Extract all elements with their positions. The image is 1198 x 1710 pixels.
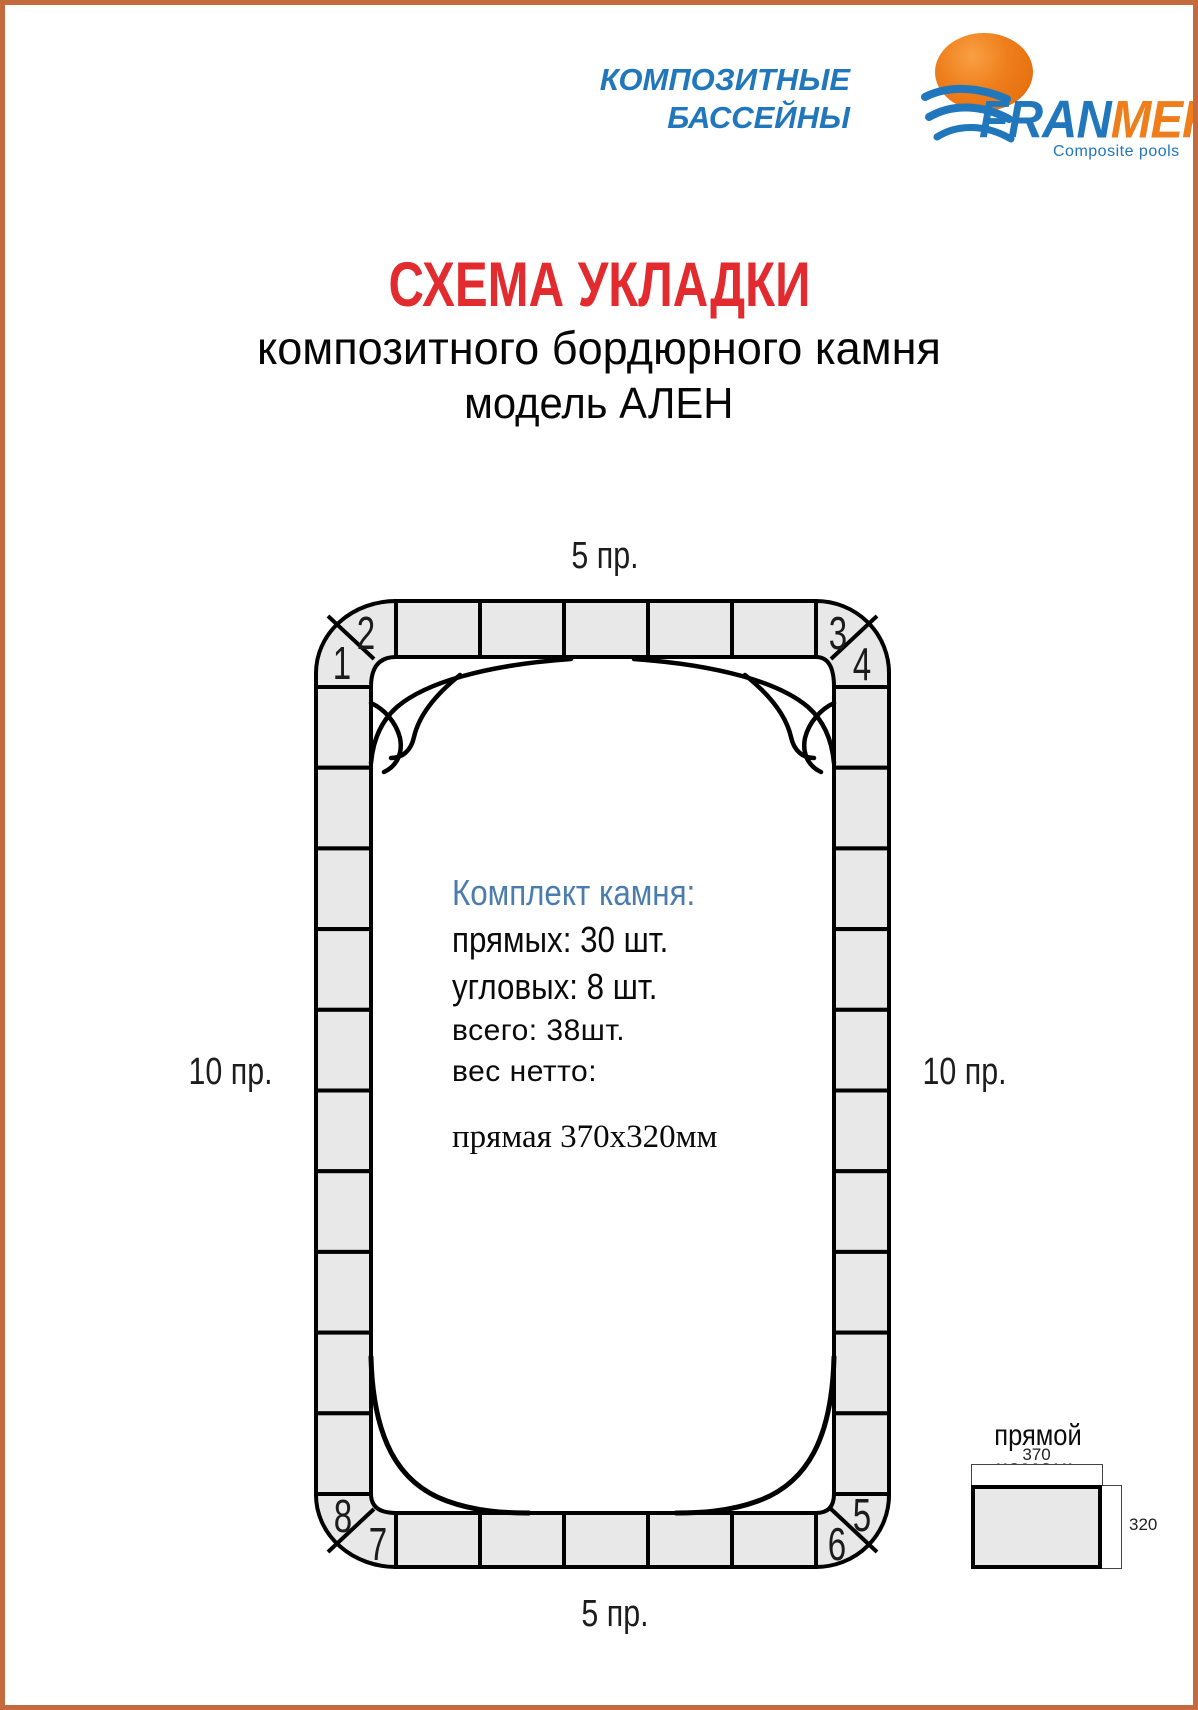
straight-tile [316,687,371,768]
straight-tile [316,929,371,1010]
franmer-logo: FRANMER® Composite pools [905,25,1195,175]
corner-number: 4 [853,640,871,690]
label-bottom-count: 5 пр. [555,1593,675,1636]
bottom-shell-curve [371,1357,529,1513]
straight-tile [564,601,648,657]
legend-width-dimension-box [971,1464,1103,1486]
corner-number: 1 [333,639,351,689]
bottom-shell-curve [676,1357,834,1513]
corner-number: 6 [828,1520,846,1570]
brand-name-fran: FRAN [979,91,1111,150]
straight-tile [648,1513,732,1567]
company-tagline: КОМПОЗИТНЫЕ БАССЕЙНЫ [560,61,850,137]
corner-number: 8 [334,1492,352,1542]
straight-tile [834,1252,889,1333]
straight-tile [834,1010,889,1091]
page-subtitle: композитного бордюрного камня [5,321,1193,375]
straight-tile [648,601,732,657]
corner-number: 5 [853,1491,871,1541]
kit-straight-count: прямых: 30 шт. [452,916,792,963]
straight-tile [564,1513,648,1567]
straight-tile [316,1171,371,1252]
tagline-line1: КОМПОЗИТНЫЕ [560,61,850,99]
corner-number: 2 [357,609,375,659]
straight-tile [834,929,889,1010]
legend-width-label: 370 [971,1445,1102,1465]
legend-height-label: 320 [1129,1515,1157,1535]
page-title: СХЕМА УКЛАДКИ [5,249,1193,321]
straight-tile [834,687,889,768]
straight-tile [732,601,816,657]
page: 12345678 КОМПОЗИТНЫЕ БАССЕЙНЫ FRANMER® C… [0,0,1198,1710]
straight-tile [396,601,480,657]
brand-name: FRANMER® [979,87,1198,147]
kit-net-weight: вес нетто: [452,1051,792,1092]
straight-tile [316,768,371,849]
straight-tile [316,1010,371,1091]
tagline-line2: БАССЕЙНЫ [560,99,850,137]
straight-tile [834,1413,889,1494]
straight-tile [834,848,889,929]
kit-corner-count: угловых: 8 шт. [452,963,792,1010]
legend-stone [971,1485,1102,1569]
brand-subtitle: Composite pools [1053,143,1180,161]
straight-tile [396,1513,480,1567]
stone-dimension-note: прямая 370х320мм [452,1119,792,1156]
legend-height-dimension-box [1101,1485,1122,1569]
straight-tile [316,1333,371,1414]
straight-tile [316,1091,371,1172]
kit-total-count: всего: 38шт. [452,1010,792,1051]
kit-heading: Комплект камня: [452,869,792,916]
corner-number: 7 [369,1520,387,1570]
straight-tile [834,1171,889,1252]
label-right-count: 10 пр. [905,1051,1025,1094]
straight-tile [834,768,889,849]
corner-number: 3 [829,609,847,659]
label-left-count: 10 пр. [171,1051,291,1094]
brand-name-mer: MER [1111,91,1198,150]
straight-tile [316,848,371,929]
straight-tile [834,1333,889,1414]
label-top-count: 5 пр. [545,535,665,578]
straight-tile [834,1091,889,1172]
straight-tile [480,1513,564,1567]
straight-tile [732,1513,816,1567]
straight-tile [480,601,564,657]
stone-kit-info: Комплект камня: прямых: 30 шт. угловых: … [452,869,792,1156]
straight-tile [316,1252,371,1333]
straight-tile [316,1413,371,1494]
model-name: модель АЛЕН [5,379,1193,429]
